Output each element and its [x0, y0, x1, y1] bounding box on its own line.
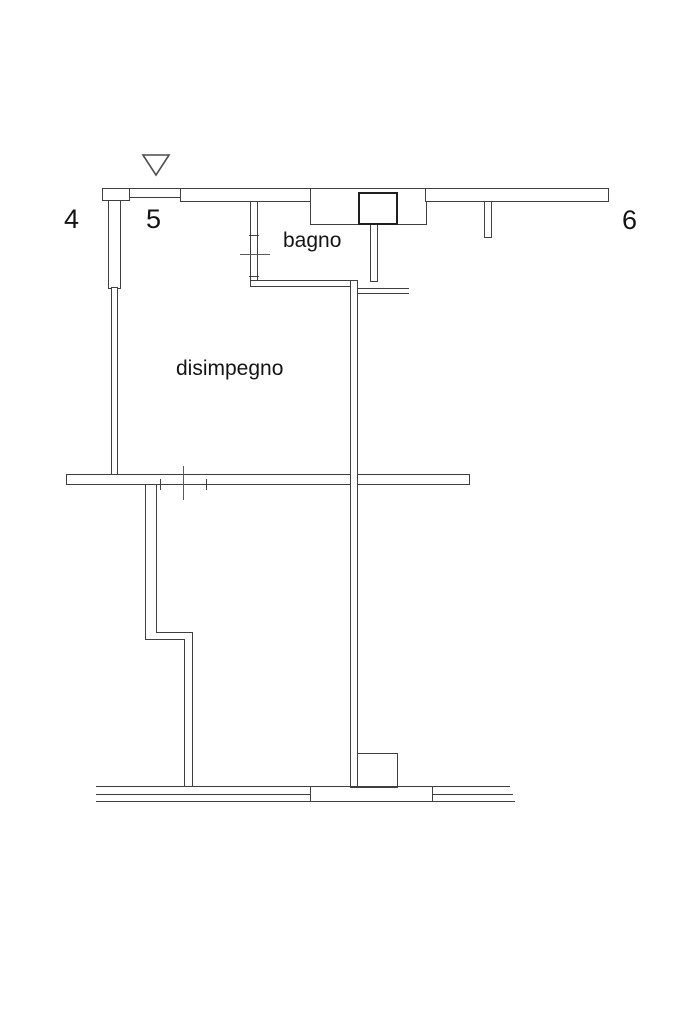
room-label-bagno: bagno: [283, 230, 341, 251]
wall-bagno-bottom: [250, 280, 358, 287]
wall-jog-horizontal-top: [156, 632, 193, 633]
position-marker-5: 5: [146, 206, 161, 233]
wall-jog-horizontal-bottom: [145, 639, 185, 640]
wall-jog-vertical-inner-upper: [156, 484, 157, 633]
bagno-door-tick-1: [249, 235, 259, 236]
wall-jog-vertical-outer-upper: [145, 484, 146, 640]
wall-bottom-connector-1: [310, 786, 311, 802]
middle-wall-door-leaf-line: [183, 466, 184, 500]
wall-main-vertical: [350, 280, 358, 788]
wall-bottom-connector-2: [432, 786, 433, 802]
wall-top-stub: [484, 201, 492, 238]
bagno-door-tick-2: [249, 276, 259, 277]
position-marker-4: 4: [64, 206, 79, 233]
room-label-disimpegno: disimpegno: [176, 358, 283, 379]
door-threshold-line-2: [358, 293, 409, 294]
wall-bagno-right: [370, 224, 378, 282]
wall-bagno-left: [250, 201, 258, 287]
wall-left-lower: [111, 287, 118, 475]
bottom-wall-box: [357, 753, 398, 788]
wall-jog-vertical-inner-lower: [192, 632, 193, 787]
wall-bottom-line-middle-left: [96, 794, 310, 795]
wall-jog-vertical-outer-lower: [184, 639, 185, 787]
floor-plan-canvas: 4 5 6 bagno disimpegno: [0, 0, 683, 1024]
middle-wall-door-tick-2: [206, 479, 207, 490]
top-wall-box: [358, 192, 398, 225]
wall-bottom-line-top: [96, 786, 510, 787]
wall-bottom-line-middle-right: [432, 794, 513, 795]
triangle-marker-icon: [140, 152, 172, 179]
door-threshold-line-1: [358, 288, 409, 289]
wall-bottom-line-bottom: [96, 801, 515, 802]
wall-middle-horizontal: [66, 474, 470, 485]
wall-top-segment-right: [425, 188, 609, 202]
position-marker-6: 6: [622, 207, 637, 234]
wall-top-segment-b: [180, 188, 312, 202]
bagno-door-line: [240, 254, 270, 255]
wall-left-upper: [108, 200, 121, 289]
middle-wall-door-tick-1: [160, 479, 161, 490]
wall-top-segment-a: [129, 188, 182, 198]
